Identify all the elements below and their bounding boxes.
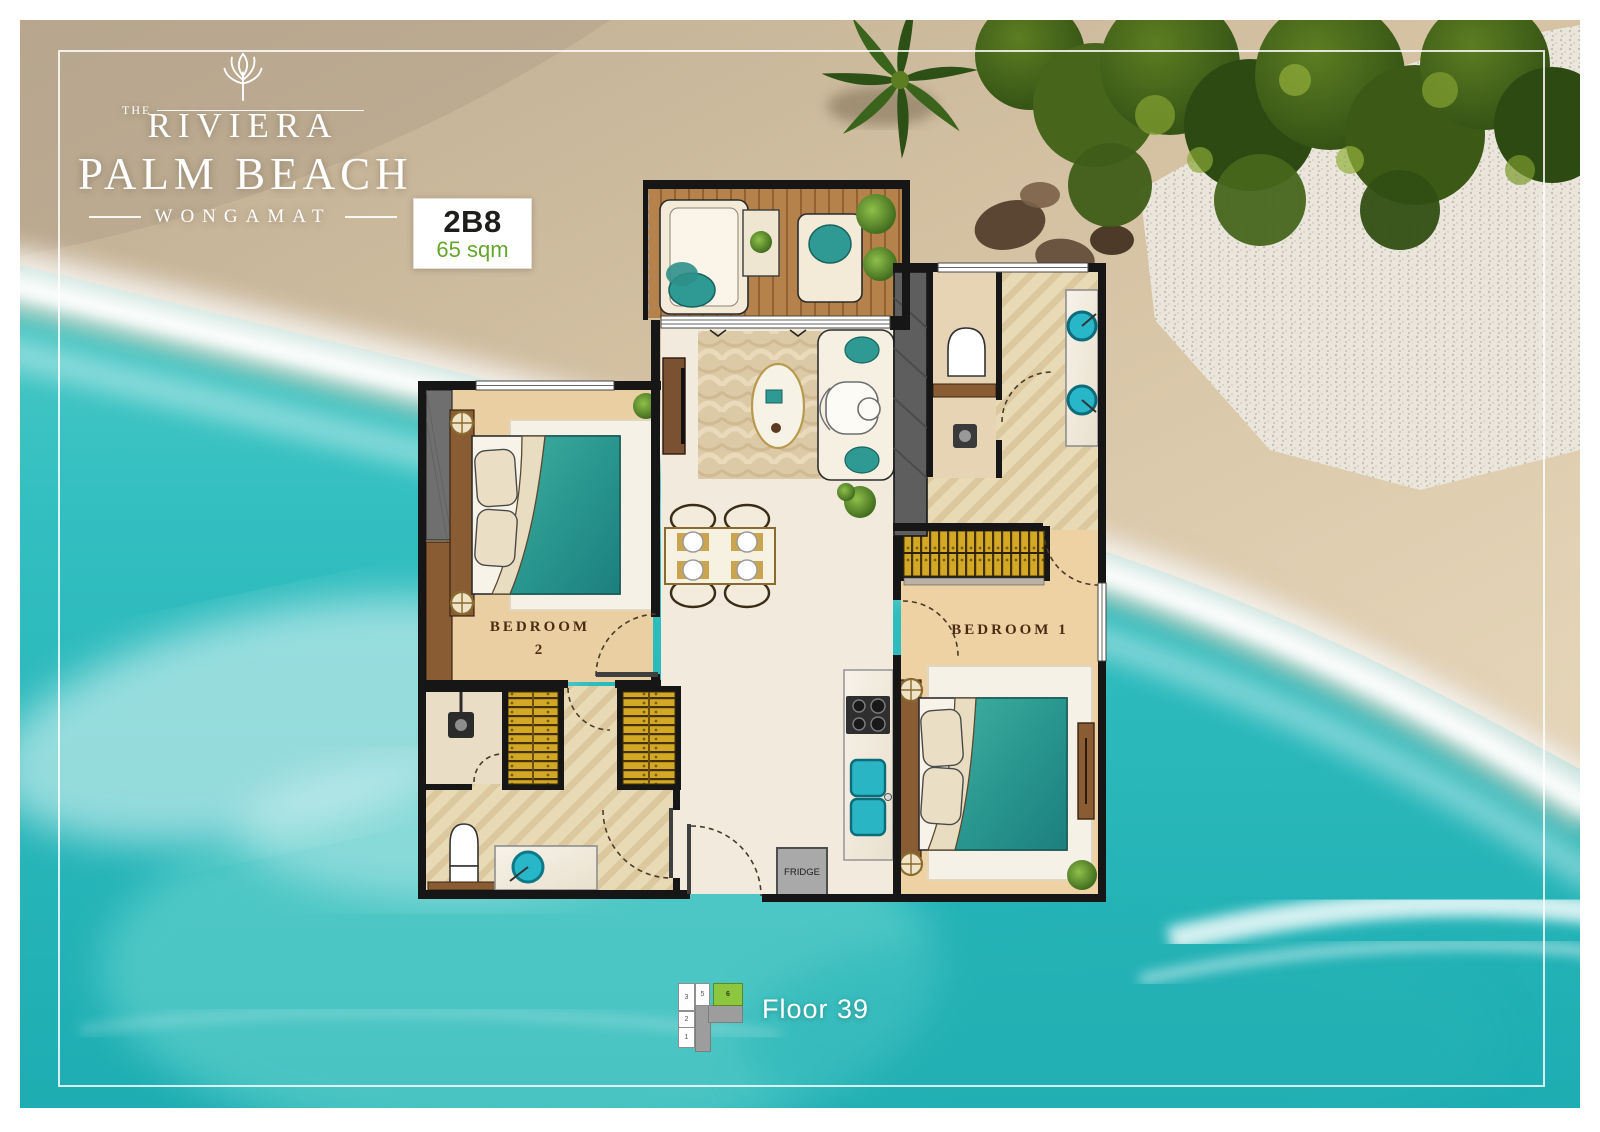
flyer-page: THE RIVIERA PALM BEACH WONGAMAT 2B8 65 s… xyxy=(0,0,1600,1132)
toilet xyxy=(450,824,478,866)
brand-title: PALM BEACH xyxy=(78,148,408,200)
kitchen-sink xyxy=(851,760,885,796)
brand-logo: THE RIVIERA PALM BEACH WONGAMAT xyxy=(78,52,408,228)
sliding-door xyxy=(661,316,890,328)
bedroom1-label: BEDROOM 1 xyxy=(951,622,1068,638)
balcony-plant xyxy=(856,194,896,234)
floor-number-label: Floor 39 xyxy=(762,994,869,1025)
coffee-table xyxy=(752,364,804,448)
brand-the: THE xyxy=(122,103,151,118)
brand-rule-right xyxy=(345,216,397,218)
floor-key-diagram: 3 5 6 2 1 xyxy=(675,980,755,1050)
service-shaft xyxy=(894,272,927,536)
bedroom2-headboard xyxy=(450,410,474,616)
floor-key-core xyxy=(708,1005,743,1023)
bedroom1-plant xyxy=(1067,860,1097,890)
bedroom2-label-number: 2 xyxy=(535,642,546,658)
tv xyxy=(681,368,685,444)
vanity xyxy=(495,846,597,890)
pillow xyxy=(474,449,518,508)
palm-emblem-icon xyxy=(214,52,272,102)
floor-key-unit-6-highlighted: 6 xyxy=(713,983,743,1006)
pillow xyxy=(920,709,964,768)
floor-key-unit-5: 5 xyxy=(695,983,710,1006)
pillow xyxy=(920,767,964,826)
brand-rule-left xyxy=(89,216,141,218)
bedroom2-label: BEDROOM xyxy=(490,619,590,635)
floor-plan: BEDROOM 2 xyxy=(410,178,1110,908)
bedroom1-headboard xyxy=(899,680,921,870)
kitchen-sink xyxy=(851,799,885,835)
floor-key-unit-2: 2 xyxy=(678,1011,695,1028)
brand-location: WONGAMAT xyxy=(155,206,332,228)
toilet xyxy=(948,328,985,376)
floor-key-unit-1: 1 xyxy=(678,1027,695,1048)
pillow xyxy=(474,509,518,568)
fridge-label: FRIDGE xyxy=(784,867,820,878)
bedroom2-cabinet xyxy=(426,542,452,688)
floor-key-unit-3: 3 xyxy=(678,983,695,1011)
